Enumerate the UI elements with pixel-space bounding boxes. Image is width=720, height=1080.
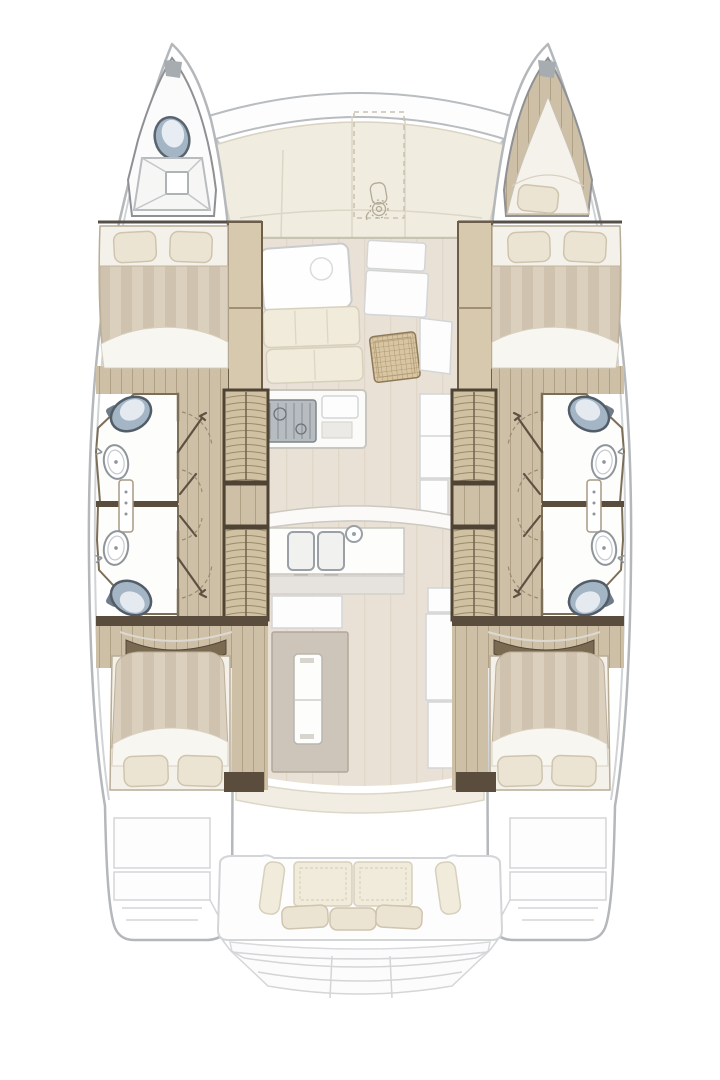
forward-cabin xyxy=(96,222,262,394)
rattan-stool xyxy=(369,331,420,382)
anchor-tip-locker xyxy=(538,60,556,78)
stern-locker-a xyxy=(114,818,210,868)
stove xyxy=(264,400,316,442)
sink-bowl-right xyxy=(318,532,344,570)
heads-divider xyxy=(96,501,178,507)
cabin-floor xyxy=(96,366,228,394)
companionway-stairs xyxy=(224,390,268,620)
catamaran-floorplan xyxy=(0,0,720,1080)
aft-cabin xyxy=(96,616,268,792)
sink-bowl-left xyxy=(288,532,314,570)
floorplan-canvas xyxy=(0,0,720,1080)
starboard-bow-compartment xyxy=(504,58,592,216)
transom-steps xyxy=(232,952,488,994)
island-lower-counter xyxy=(264,576,404,594)
salon-dining-area xyxy=(260,243,363,384)
salon-settee xyxy=(263,306,364,383)
tall-locker-door xyxy=(294,654,322,744)
vanity-shelf xyxy=(119,480,133,532)
sink-unit xyxy=(264,526,404,575)
galley-appliance xyxy=(322,396,358,418)
aft-bulkhead xyxy=(96,616,268,626)
chart-cabinet xyxy=(420,318,452,374)
throw-pillows xyxy=(281,905,422,930)
port-bow-compartment xyxy=(128,58,216,216)
double-berth xyxy=(110,652,230,790)
deck-hatch xyxy=(134,158,210,210)
aft-island xyxy=(272,632,348,772)
double-berth xyxy=(99,226,228,368)
stern-locker-b xyxy=(114,872,210,900)
aft-cabin-end-bulkhead xyxy=(224,772,264,792)
pillow-left xyxy=(113,231,157,263)
cockpit xyxy=(218,855,502,998)
salon-table xyxy=(260,243,352,313)
stair-landing xyxy=(224,484,268,526)
aft-cabin-floor-inboard xyxy=(232,668,268,790)
galley-side-counter xyxy=(272,596,342,628)
pillow-left xyxy=(123,755,168,787)
pillow-right xyxy=(169,231,212,262)
anchor-tip-locker xyxy=(164,60,182,78)
pillow-right xyxy=(177,755,222,787)
galley-tray xyxy=(322,422,352,438)
pillow xyxy=(517,184,559,214)
heads-compartments xyxy=(94,390,228,622)
